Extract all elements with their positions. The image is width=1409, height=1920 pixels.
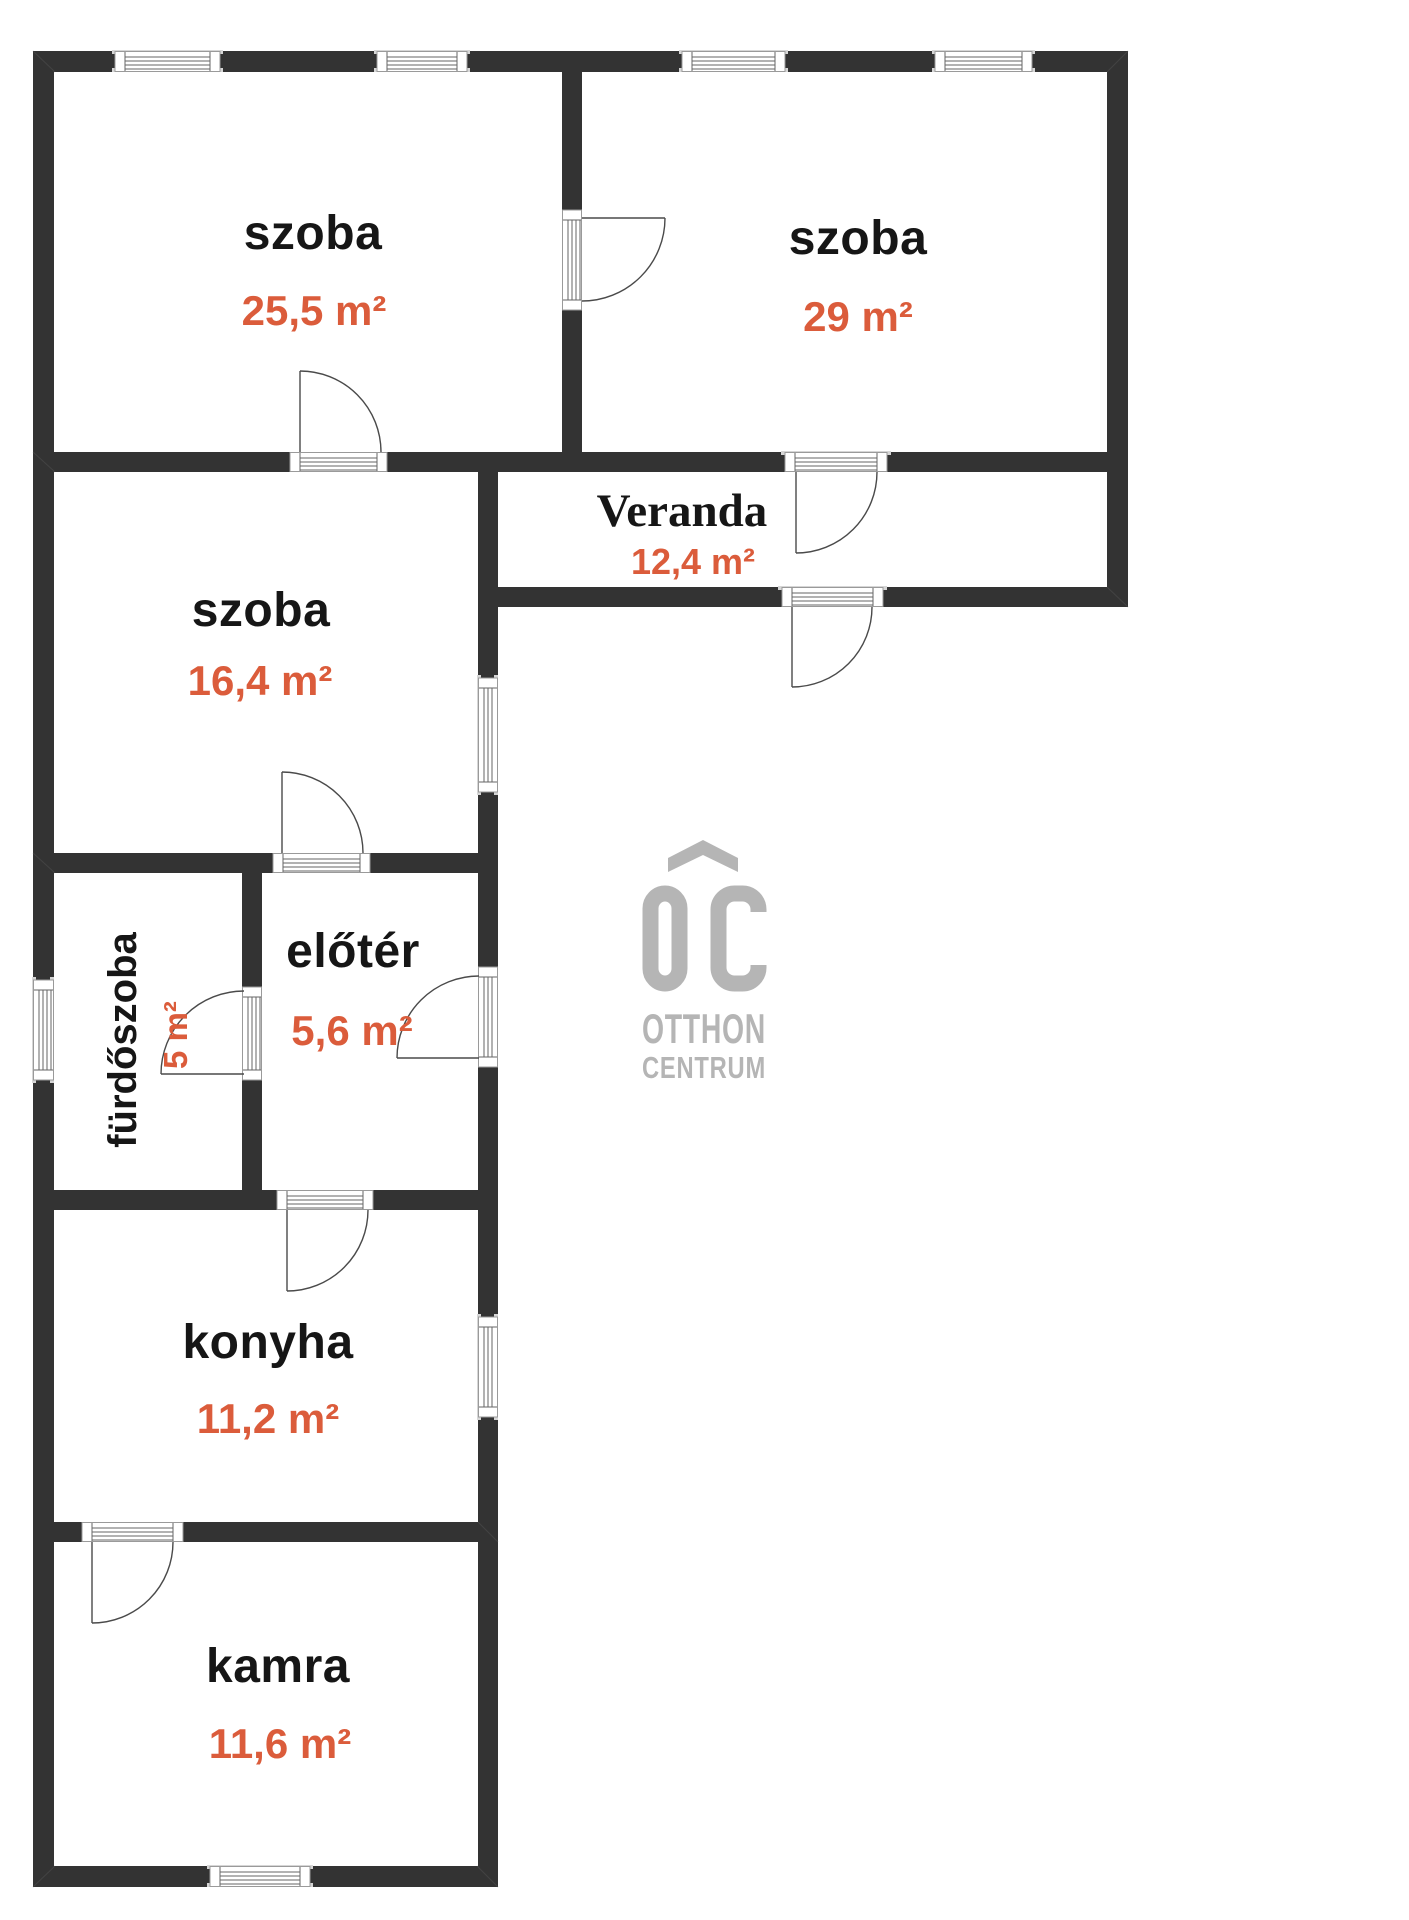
- otthon-centrum-logo: OTTHON CENTRUM: [642, 840, 772, 1085]
- door: [563, 210, 666, 310]
- floor-plan: szoba 25,5 m² szoba 29 m² Veranda 12,4 m…: [0, 0, 1409, 1920]
- room-label-kamra: kamra: [206, 1640, 350, 1693]
- door: [273, 772, 370, 873]
- room-area-szoba-2: 29 m²: [803, 293, 913, 340]
- wall-szoba-veranda-row: [33, 452, 1128, 472]
- room-area-kamra: 11,6 m²: [209, 1720, 351, 1767]
- window: [32, 977, 54, 1083]
- wall-outer-left: [33, 51, 54, 1887]
- walls: [33, 51, 1128, 1887]
- logo-text-centrum: CENTRUM: [642, 1050, 766, 1085]
- window: [679, 50, 788, 72]
- window: [477, 675, 498, 795]
- door: [277, 1191, 373, 1292]
- window: [207, 1865, 313, 1887]
- logo-roof-icon: [668, 840, 738, 872]
- room-label-szoba-2: szoba: [789, 212, 928, 265]
- door: [290, 371, 387, 472]
- room-area-szoba-3: 16,4 m²: [188, 657, 333, 704]
- room-area-veranda: 12,4 m²: [631, 541, 755, 582]
- door: [82, 1523, 183, 1624]
- logo-c-gap: [746, 912, 772, 965]
- window: [374, 50, 470, 72]
- room-label-szoba-1: szoba: [244, 207, 383, 260]
- logo-text-otthon: OTTHON: [642, 1005, 766, 1052]
- wall-szoba16-bottom: [33, 853, 498, 873]
- room-label-szoba-3: szoba: [192, 584, 331, 637]
- room-label-konyha: konyha: [182, 1316, 353, 1369]
- room-label-eloter: előtér: [286, 925, 420, 978]
- window: [112, 50, 223, 72]
- room-area-furdoszoba: 5 m²: [157, 1001, 194, 1069]
- room-area-eloter: 5,6 m²: [291, 1007, 412, 1054]
- room-area-konyha: 11,2 m²: [197, 1395, 339, 1442]
- logo-monogram-oc: [651, 894, 759, 984]
- wall-eloter-konyha-row: [33, 1190, 498, 1210]
- door: [781, 451, 891, 553]
- window: [932, 50, 1035, 72]
- room-label-furdoszoba: fürdőszoba: [101, 931, 145, 1147]
- room-area-szoba-1: 25,5 m²: [242, 287, 387, 334]
- room-label-veranda: Veranda: [597, 485, 768, 537]
- door: [778, 586, 887, 687]
- window: [477, 1314, 498, 1420]
- wall-outer-right: [1107, 51, 1128, 607]
